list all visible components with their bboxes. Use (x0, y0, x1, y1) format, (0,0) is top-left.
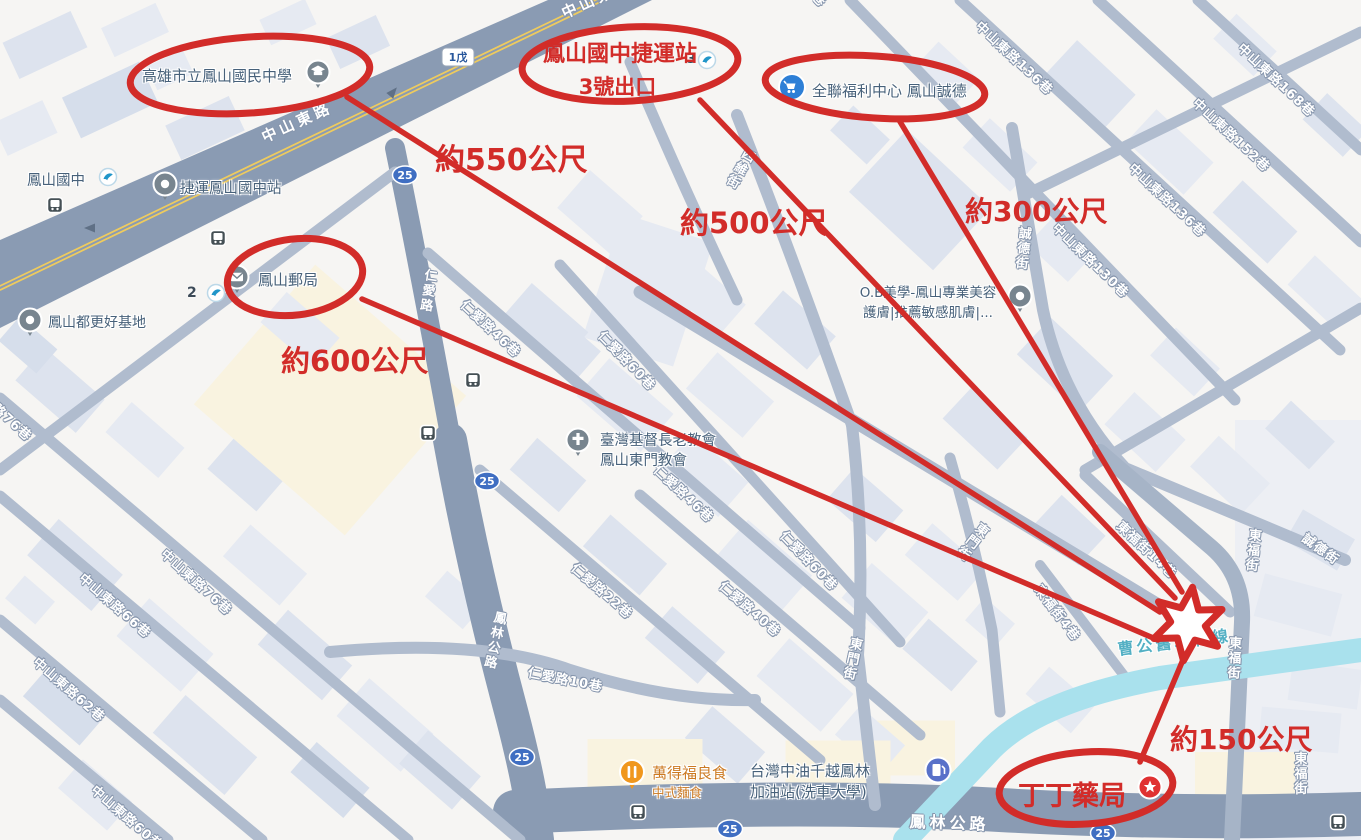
svg-text:25: 25 (1095, 827, 1110, 840)
bus-stop-icon[interactable] (466, 373, 481, 388)
county-route-shield: 25 (718, 820, 743, 838)
px-mart-cart-icon[interactable] (779, 74, 805, 100)
bus-stop-icon[interactable] (48, 198, 63, 213)
county-route-shield: 25 (475, 472, 500, 490)
county-route-shield: 25 (510, 748, 535, 766)
county-route-shield: 25 (1091, 824, 1116, 840)
pharmacy-star-icon[interactable] (1139, 776, 1162, 799)
provincial-route-shield: 1戊 (442, 48, 474, 66)
base-map[interactable]: 1戊 25 25 25 25 25 (0, 0, 1361, 840)
bus-stop-icon[interactable] (1331, 815, 1346, 830)
svg-text:25: 25 (722, 823, 737, 836)
bus-stop-icon[interactable] (631, 805, 646, 820)
svg-text:1戊: 1戊 (449, 50, 468, 64)
krt-logo-icon (100, 169, 117, 186)
svg-text:25: 25 (479, 475, 494, 488)
bus-stop-icon[interactable] (421, 426, 436, 441)
building (1258, 707, 1341, 754)
map-canvas[interactable]: 1戊 25 25 25 25 25 (0, 0, 1361, 840)
county-route-shield: 25 (393, 166, 418, 184)
svg-text:25: 25 (397, 169, 412, 182)
gas-station-pin-icon[interactable] (926, 758, 951, 783)
krt-logo-icon (208, 285, 225, 302)
svg-text:25: 25 (514, 751, 529, 764)
krt-logo-icon (699, 52, 716, 69)
bus-stop-icon[interactable] (211, 231, 226, 246)
